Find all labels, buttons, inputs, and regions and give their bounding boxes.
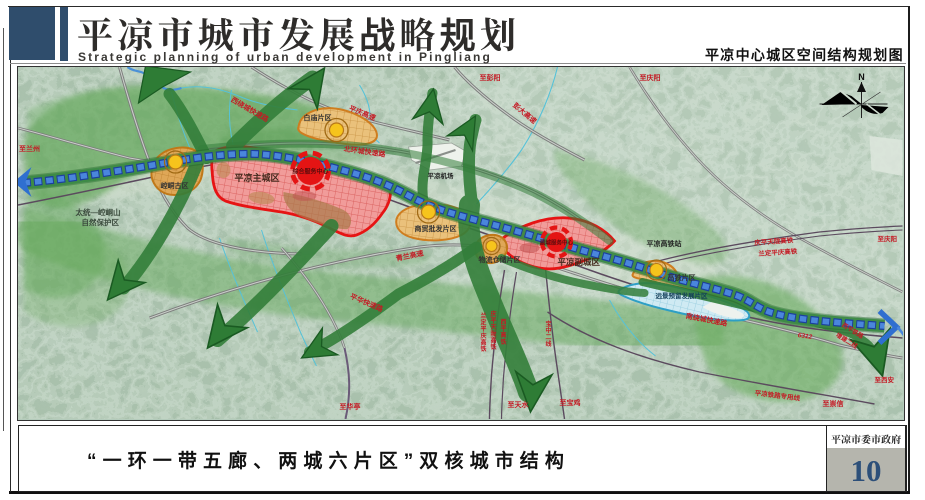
svg-text:至庆阳: 至庆阳 (640, 73, 661, 82)
svg-text:平凉机场: 平凉机场 (428, 171, 455, 180)
svg-text:宝中二线: 宝中二线 (546, 320, 552, 348)
svg-text:至崇信: 至崇信 (823, 399, 844, 408)
svg-text:平凉主城区: 平凉主城区 (235, 172, 280, 183)
svg-text:庆平天陇高铁: 庆平天陇高铁 (490, 310, 497, 351)
svg-text:综合服务中心: 综合服务中心 (292, 167, 328, 175)
svg-text:远景预留发展片区: 远景预留发展片区 (656, 291, 709, 300)
svg-text:至宝鸡: 至宝鸡 (560, 398, 581, 407)
svg-text:西平高铁: 西平高铁 (501, 318, 507, 346)
svg-text:至兰州: 至兰州 (19, 144, 40, 153)
svg-text:至华亭: 至华亭 (340, 402, 361, 411)
svg-text:平凉副城区: 平凉副城区 (558, 257, 601, 267)
svg-text:太统—崆峒山: 太统—崆峒山 (76, 207, 121, 217)
svg-text:崆峒古区: 崆峒古区 (161, 181, 189, 190)
svg-text:商贸批发片区: 商贸批发片区 (415, 224, 457, 233)
svg-text:物流仓储片区: 物流仓储片区 (479, 255, 521, 264)
svg-text:至庆阳: 至庆阳 (878, 234, 898, 243)
svg-text:白庙片区: 白庙片区 (304, 113, 332, 122)
svg-text:至天水: 至天水 (508, 400, 530, 409)
svg-text:平凉高铁站: 平凉高铁站 (647, 239, 682, 248)
svg-text:副城服务中心: 副城服务中心 (540, 238, 574, 246)
svg-text:自然保护区: 自然保护区 (82, 217, 120, 227)
svg-text:高铁片区: 高铁片区 (668, 273, 696, 282)
svg-text:至西安: 至西安 (875, 375, 895, 384)
svg-text:兰定平庆高铁: 兰定平庆高铁 (480, 312, 487, 353)
svg-text:至彭阳: 至彭阳 (480, 73, 501, 82)
svg-text:N: N (858, 72, 865, 82)
